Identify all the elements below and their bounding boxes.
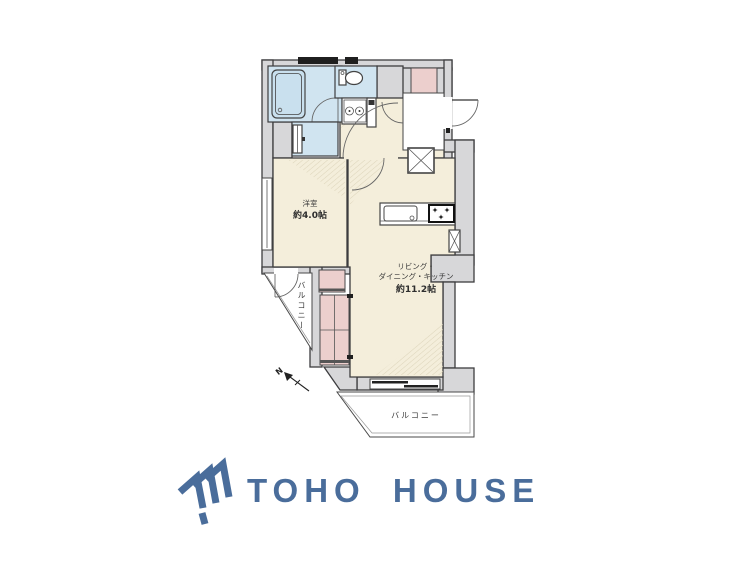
closets bbox=[319, 270, 353, 365]
balcony-side-label: バルコニー bbox=[292, 281, 306, 353]
window-ldk-sliding bbox=[370, 379, 440, 389]
washbasin-room bbox=[292, 122, 338, 156]
washing-machine-pan bbox=[342, 98, 368, 124]
kitchen-sink bbox=[384, 206, 417, 221]
ldk-label-line2: ダイニング・キッチン bbox=[379, 271, 454, 281]
toho-house-logo-icon bbox=[176, 454, 234, 528]
kitchen bbox=[380, 203, 455, 225]
north-arrow: N bbox=[274, 366, 309, 391]
western-room-size: 約4.0帖 bbox=[293, 209, 327, 221]
window-west bbox=[262, 178, 272, 250]
brand-logo: TOHO HOUSE bbox=[176, 454, 540, 528]
balcony-door-opening bbox=[274, 268, 298, 274]
compass-n-label: N bbox=[274, 366, 285, 377]
ldk-label-line1: リビング・ bbox=[397, 261, 435, 271]
front-door-arc bbox=[452, 100, 478, 126]
toilet-room bbox=[335, 66, 377, 98]
ldk-size: 約11.2帖 bbox=[396, 283, 436, 295]
bathtub bbox=[272, 70, 305, 118]
balcony-bottom-label: バルコニー bbox=[391, 411, 441, 420]
stove bbox=[429, 205, 454, 222]
floorplan-drawing: 洋室 約4.0帖 リビング・ ダイニング・キッチン 約11.2帖 バルコニー N bbox=[240, 40, 500, 450]
brand-logo-text: TOHO HOUSE bbox=[247, 472, 540, 510]
genkan-floor bbox=[403, 93, 444, 150]
western-room-label: 洋室 bbox=[303, 198, 318, 208]
pillar-x-box bbox=[408, 148, 434, 173]
toilet-bowl bbox=[346, 72, 363, 85]
bathroom bbox=[268, 66, 342, 122]
duct-x-box bbox=[449, 230, 460, 252]
shoe-closet bbox=[411, 68, 437, 93]
hall-cabinet bbox=[367, 98, 376, 127]
page: 洋室 約4.0帖 リビング・ ダイニング・キッチン 約11.2帖 バルコニー N… bbox=[0, 0, 750, 563]
wall-shaft-segment-2 bbox=[345, 57, 358, 64]
wall-shaft-segment bbox=[298, 57, 338, 64]
